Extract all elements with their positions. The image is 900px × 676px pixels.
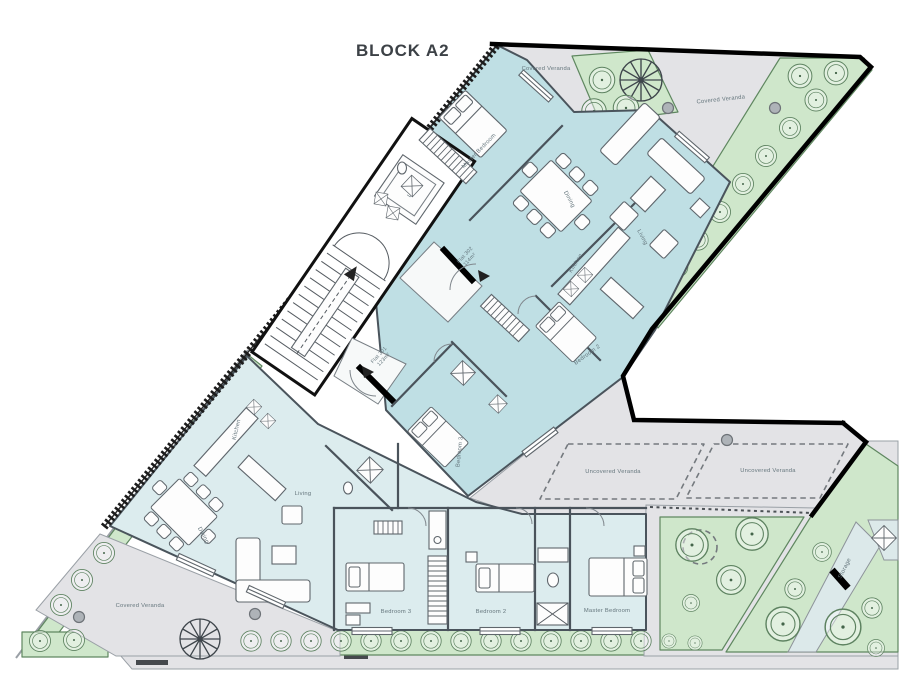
bed <box>346 563 404 591</box>
bed <box>476 564 534 592</box>
tree-icon <box>755 145 776 166</box>
spiral-stair-icon <box>620 59 662 101</box>
tree-icon <box>688 636 702 650</box>
window <box>480 628 520 635</box>
wardrobe <box>428 556 447 624</box>
tree-icon <box>788 64 812 88</box>
tree-icon <box>93 542 114 563</box>
toilet <box>344 482 353 494</box>
page-title: BLOCK A2 <box>356 41 449 60</box>
tree-icon <box>241 631 261 651</box>
tree-icon <box>331 631 351 651</box>
tree-icon <box>301 631 321 651</box>
tree-icon <box>683 595 700 612</box>
column-marker <box>74 612 85 623</box>
label-301-bedroom2: Bedroom 2 <box>476 609 507 615</box>
tree-icon <box>779 117 800 138</box>
tree-icon <box>50 594 71 615</box>
tree-icon <box>571 631 591 651</box>
window <box>352 628 392 635</box>
sidewalk-tick <box>136 660 168 665</box>
tree-icon <box>805 89 827 111</box>
tree-icon <box>862 598 882 618</box>
tree-icon <box>813 543 832 562</box>
label-301-bedroom3: Bedroom 3 <box>381 609 412 615</box>
label-covered-veranda-top: Covered Veranda <box>522 66 571 72</box>
label-covered-veranda-bottomleft: Covered Veranda <box>116 603 165 609</box>
column-marker <box>722 435 733 446</box>
label-uncovered-veranda-1: Uncovered Veranda <box>585 469 641 475</box>
tree-icon <box>421 631 441 651</box>
tree-icon <box>785 579 805 599</box>
nightstand <box>634 546 645 556</box>
dresser <box>346 615 360 625</box>
tree-icon <box>631 631 651 651</box>
tree-icon <box>541 631 561 651</box>
floor-plan-canvas: LIFT <box>0 0 900 676</box>
tree-icon <box>717 566 746 595</box>
tree-icon <box>451 631 471 651</box>
tree-icon <box>589 67 615 93</box>
bed <box>589 558 647 596</box>
spiral-stair-icon <box>180 619 220 659</box>
tree-icon <box>825 609 861 645</box>
tree-icon <box>824 61 848 85</box>
meter-box-icon <box>386 206 400 220</box>
toilet <box>398 162 407 174</box>
meter-box-icon <box>374 192 388 206</box>
tree-icon <box>271 631 291 651</box>
tree-icon <box>732 173 753 194</box>
label-uncovered-veranda-2: Uncovered Veranda <box>740 468 796 474</box>
label-301-master-bedroom: Master Bedroom <box>584 608 630 614</box>
column-marker <box>770 103 781 114</box>
tree-icon <box>662 634 676 648</box>
sidewalk-bar <box>120 655 898 669</box>
tree-icon <box>736 518 768 550</box>
column-marker <box>250 609 261 620</box>
nightstand <box>466 552 477 562</box>
label-301-living: Living <box>295 491 312 497</box>
tree-icon <box>676 529 708 561</box>
dresser <box>346 603 370 613</box>
column-marker <box>663 103 674 114</box>
tree-icon <box>63 629 84 650</box>
tree-icon <box>391 631 411 651</box>
tree-icon <box>766 607 800 641</box>
tree-icon <box>71 569 92 590</box>
tree-icon <box>29 630 50 651</box>
floor-plan-page: LIFT <box>0 0 900 676</box>
tree-icon <box>868 640 885 657</box>
window <box>592 628 632 635</box>
